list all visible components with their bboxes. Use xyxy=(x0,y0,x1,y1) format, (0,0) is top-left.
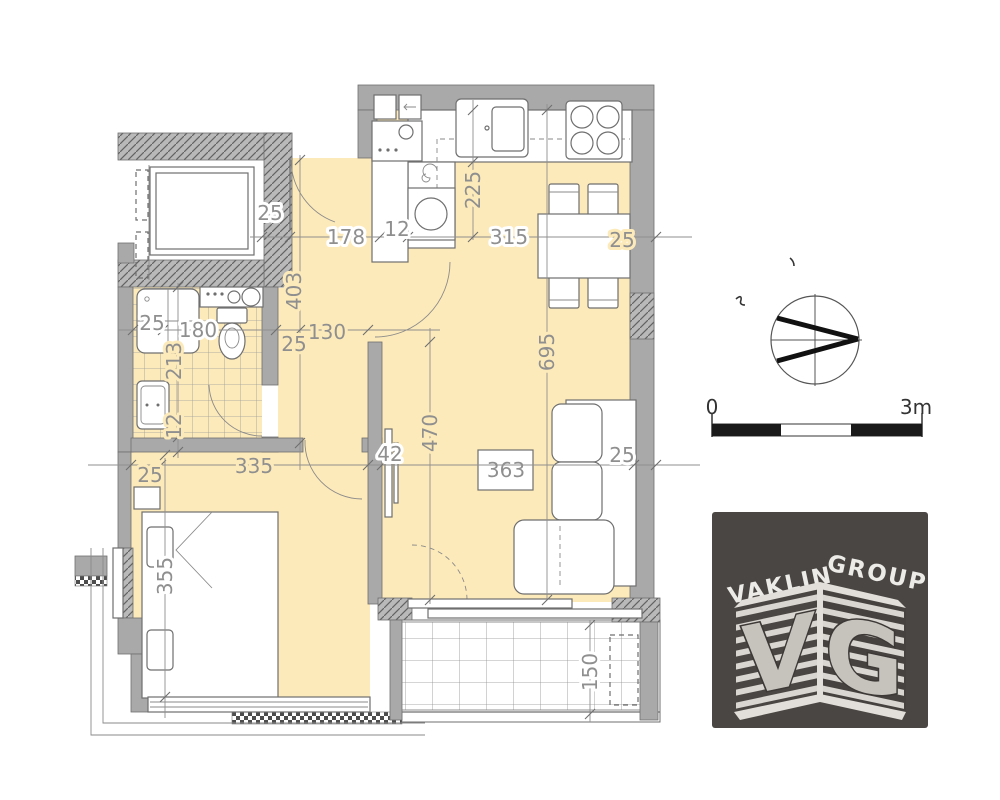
dimension-label: 25 xyxy=(609,228,634,252)
floor-plan-canvas: 25 178 12 315 25 225 403 25 130 25 180 2… xyxy=(0,0,1000,800)
elevator-car-inner xyxy=(156,173,248,249)
compass-icon xyxy=(736,258,862,386)
panel-dot-1 xyxy=(378,148,381,151)
elevator-wall-corner xyxy=(118,243,134,263)
dimension-label: 213 xyxy=(162,342,186,380)
dimension-label: 42 xyxy=(377,442,402,466)
dimension-label: 470 xyxy=(418,414,442,452)
counter-dot xyxy=(220,292,223,295)
scale-segment-black xyxy=(851,424,922,436)
dimension-label: 12 xyxy=(162,413,186,438)
dimension-label: 363 xyxy=(487,458,525,482)
elevator-car xyxy=(150,167,254,255)
bedroom-door-gap xyxy=(303,438,362,452)
basin-dot xyxy=(146,404,149,407)
wall-left-upper xyxy=(118,287,133,452)
dimension-label: 12 xyxy=(384,217,409,241)
dimension-label: 150 xyxy=(578,653,602,691)
dimension-label: 355 xyxy=(153,557,177,595)
wall-right-insulated xyxy=(630,293,654,339)
sofa-cushion-1 xyxy=(552,404,602,462)
dimension-label: 225 xyxy=(461,171,485,209)
tall-cabinet xyxy=(372,158,408,262)
toilet-tank xyxy=(217,308,247,323)
logo-cube-center-edge xyxy=(817,584,823,696)
wall-hall-living xyxy=(368,342,382,604)
compass-mark xyxy=(790,258,794,266)
counter-dot xyxy=(206,292,209,295)
bedroom-window xyxy=(148,697,370,712)
dimension-label: 25 xyxy=(139,311,164,335)
dimension-label: 180 xyxy=(179,318,217,342)
compass-mark xyxy=(736,297,745,305)
balcony xyxy=(392,620,660,722)
insulation-bottom xyxy=(232,712,402,724)
sofa-chaise xyxy=(514,520,614,594)
dimension-label: 335 xyxy=(235,454,273,478)
scale-end-label: 3m xyxy=(900,395,932,419)
scale-bar: 0 3m xyxy=(706,395,932,437)
dimension-label: 695 xyxy=(535,333,559,371)
side-window xyxy=(113,548,123,618)
panel-dot-3 xyxy=(394,148,397,151)
dimension-label: 25 xyxy=(257,201,282,225)
appliance-box-1 xyxy=(374,95,396,119)
elevator-rail-top xyxy=(136,170,148,220)
dimension-label: 25 xyxy=(281,332,306,356)
basin-round xyxy=(242,288,260,306)
dimension-label: 25 xyxy=(609,443,634,467)
wall-balcony-right xyxy=(640,622,658,720)
appliance-panel xyxy=(372,121,422,161)
sliding-door-panel-2 xyxy=(428,609,642,618)
elevator-wall-bottom xyxy=(118,260,264,287)
wall-bath-hall xyxy=(262,287,278,385)
basin-dot xyxy=(157,404,160,407)
wall-bedroom-top xyxy=(131,438,303,452)
panel-dot-2 xyxy=(386,148,389,151)
counter-dot xyxy=(213,292,216,295)
scale-start-label: 0 xyxy=(706,395,719,419)
dimension-label: 25 xyxy=(137,463,162,487)
dimension-label: 178 xyxy=(327,225,365,249)
sofa-cushion-2 xyxy=(552,462,602,520)
pillow xyxy=(147,630,173,670)
nightstand xyxy=(134,487,160,509)
dimension-label: 315 xyxy=(490,225,528,249)
balcony-tile-grid xyxy=(398,622,644,710)
vaklin-group-logo: VAKLIN GROUP V G xyxy=(712,512,930,728)
kitchen-sink-basin xyxy=(492,107,524,151)
wall-balcony-left-insulated xyxy=(378,598,412,620)
scale-segment-black xyxy=(712,424,781,436)
dimension-label: 403 xyxy=(282,272,306,310)
floor-plan-drawing: 25 178 12 315 25 225 403 25 130 25 180 2… xyxy=(0,0,1000,800)
dimension-label: 130 xyxy=(308,320,346,344)
wall-balcony-left xyxy=(390,620,402,720)
